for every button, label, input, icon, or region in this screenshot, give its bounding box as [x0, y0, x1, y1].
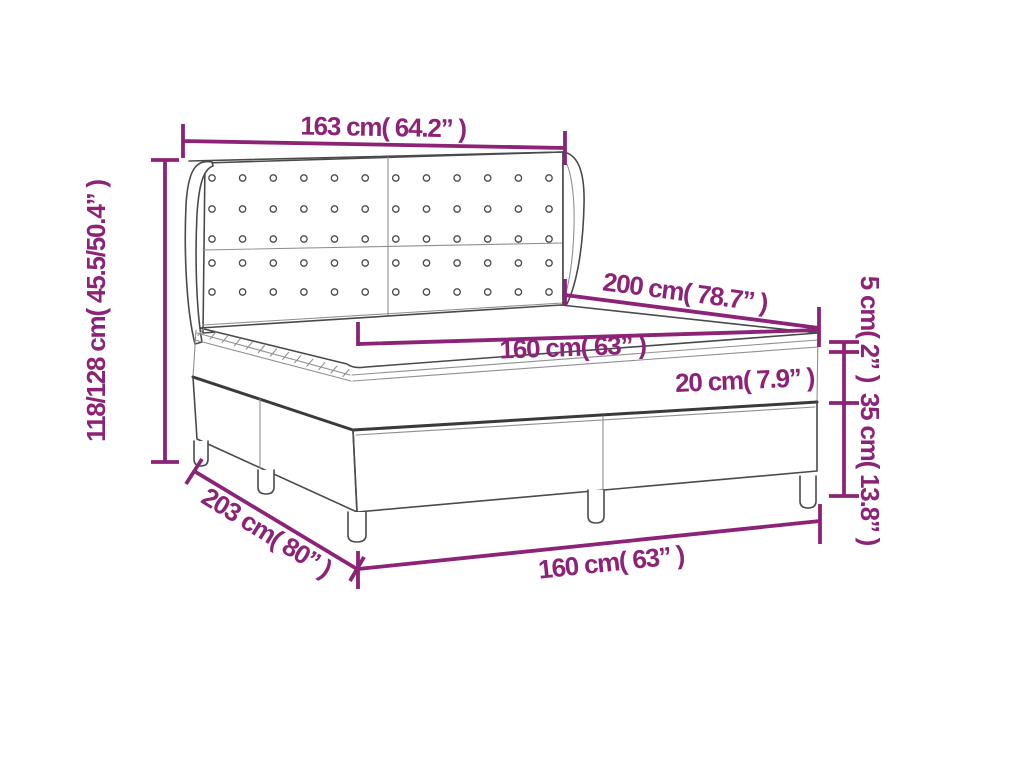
tuft-button: [454, 236, 460, 242]
tuft-button: [362, 175, 368, 181]
tuft-button: [454, 289, 460, 295]
tuft-button: [239, 289, 245, 295]
tuft-button: [270, 175, 276, 181]
tuft-button: [515, 289, 521, 295]
tuft-button: [270, 260, 276, 266]
tuft-button: [515, 236, 521, 242]
leg-left-middle: [258, 470, 274, 494]
tuft-button: [546, 289, 552, 295]
tuft-button: [485, 236, 491, 242]
tuft-button: [423, 175, 429, 181]
dim-total-height-label: 118/128 cm( 45.5/50.4” ): [81, 180, 111, 442]
dim-headboard-width-label: 163 cm( 64.2” ): [300, 111, 467, 144]
tuft-button: [331, 260, 337, 266]
tuft-button: [393, 175, 399, 181]
tuft-button: [423, 206, 429, 212]
tuft-button: [485, 206, 491, 212]
tuft-button: [301, 236, 307, 242]
label-mattress-height-text: 20 cm( 7.9” ): [675, 362, 816, 398]
base-front-face: [353, 402, 817, 512]
dim-topper-height-label: 5 cm( 2” ): [855, 276, 885, 383]
leg-front-left: [348, 512, 366, 542]
tuft-button: [454, 175, 460, 181]
base-top-piping: [356, 407, 815, 435]
tuft-button: [301, 206, 307, 212]
tuft-button: [209, 289, 215, 295]
dim-total-depth-label: 203 cm( 80” ): [197, 481, 338, 583]
tuft-button: [393, 289, 399, 295]
box-spring-base: [193, 377, 817, 512]
tuft-button: [209, 260, 215, 266]
tuft-button: [423, 236, 429, 242]
tuft-button: [485, 260, 491, 266]
bed-diagram-svg: 163 cm( 64.2” ) 118/128 cm( 45.5/50.4” )…: [0, 0, 1024, 768]
tuft-button: [515, 175, 521, 181]
tuft-button: [362, 236, 368, 242]
tuft-button: [546, 236, 552, 242]
dim-mattress-width-label: 160 cm( 63” ): [499, 329, 647, 364]
tuft-button: [546, 260, 552, 266]
dimension-diagram: 163 cm( 64.2” ) 118/128 cm( 45.5/50.4” )…: [0, 0, 1024, 768]
tuft-button: [270, 236, 276, 242]
tuft-button: [331, 175, 337, 181]
tuft-button: [546, 175, 552, 181]
tuft-button: [485, 175, 491, 181]
tuft-button: [239, 236, 245, 242]
tuft-button: [209, 175, 215, 181]
tuft-button: [362, 289, 368, 295]
tuft-button: [423, 289, 429, 295]
tuft-button: [393, 260, 399, 266]
dim-topper-and-base-height: 5 cm( 2” ) 35 cm( 13.8” ): [829, 276, 885, 546]
tuft-button: [331, 236, 337, 242]
tuft-button: [301, 289, 307, 295]
tuft-button: [239, 260, 245, 266]
tuft-button: [393, 236, 399, 242]
dim-total-height: 118/128 cm( 45.5/50.4” ): [81, 160, 179, 462]
tuft-button: [301, 175, 307, 181]
leg-front-right: [800, 476, 816, 508]
dim-base-height-label: 35 cm( 13.8” ): [855, 393, 885, 546]
tuft-button: [546, 206, 552, 212]
tuft-button: [515, 260, 521, 266]
dim-right-height-line: [829, 342, 859, 496]
tuft-button: [331, 289, 337, 295]
label-mattress-height: 20 cm( 7.9” ): [675, 362, 816, 398]
leg-front-middle: [588, 490, 604, 523]
tuft-button: [209, 236, 215, 242]
tuft-button: [454, 260, 460, 266]
tuft-button: [270, 289, 276, 295]
tuft-button: [393, 206, 399, 212]
tuft-button: [515, 206, 521, 212]
dim-total-height-line: [151, 160, 179, 462]
tuft-button: [301, 260, 307, 266]
tuft-button: [362, 206, 368, 212]
tuft-button: [331, 206, 337, 212]
tuft-button: [239, 175, 245, 181]
tuft-button: [270, 206, 276, 212]
piping-hatch: [307, 359, 313, 366]
tuft-button: [485, 289, 491, 295]
tuft-button: [239, 206, 245, 212]
tuft-button: [362, 260, 368, 266]
tuft-button: [454, 206, 460, 212]
dim-total-depth: 203 cm( 80” ): [186, 459, 364, 584]
tuft-button: [423, 260, 429, 266]
tuft-button: [209, 206, 215, 212]
